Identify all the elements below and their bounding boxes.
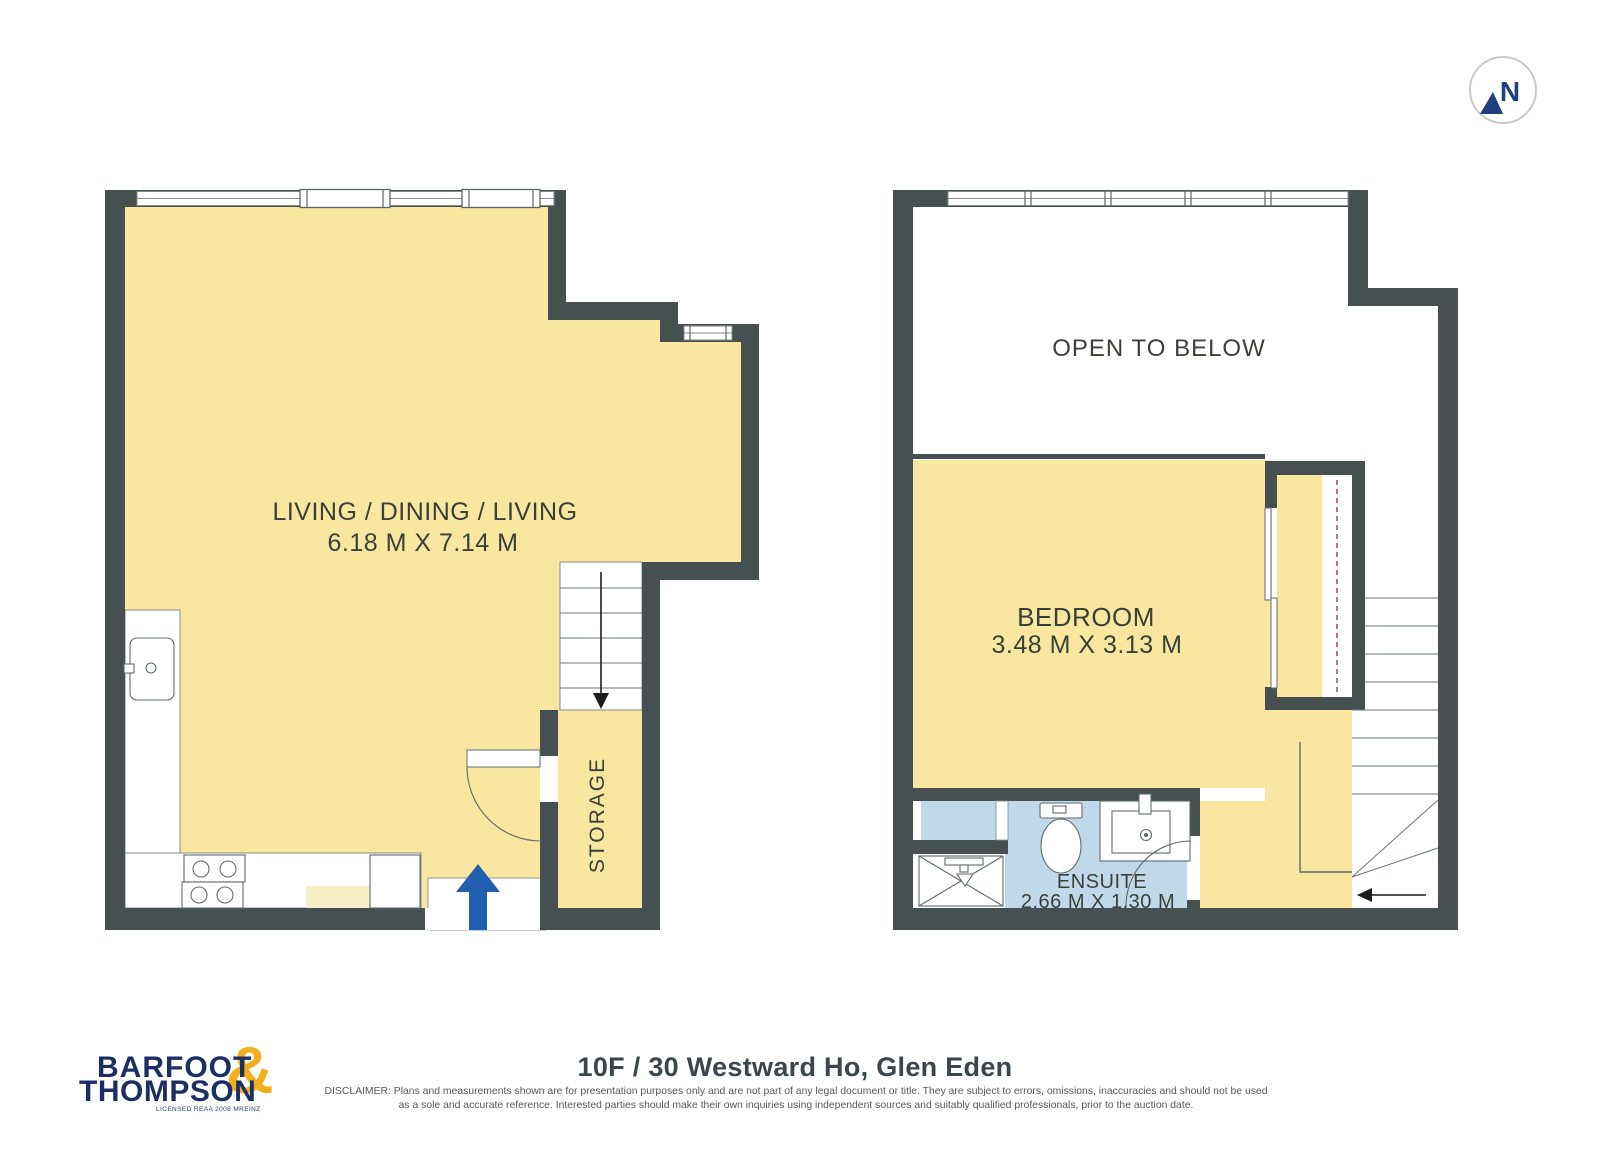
floor-plan-level-1: LIVING / DINING / LIVING 6.18 M X 7.14 M… (105, 190, 759, 931)
shower (919, 856, 1003, 906)
room-dims-ensuite: 2.66 M X 1.30 M (1021, 891, 1175, 913)
disclaimer-line1: DISCLAIMER: Plans and measurements shown… (0, 1085, 1592, 1099)
north-compass: N (1470, 57, 1536, 123)
disclaimer-line2: as a sole and accurate reference. Intere… (0, 1099, 1592, 1113)
page-title: 10F / 30 Westward Ho, Glen Eden (0, 1052, 1590, 1083)
window-band-level2 (948, 190, 1348, 207)
storage-door-opening (540, 756, 558, 802)
room-label-living: LIVING / DINING / LIVING (272, 498, 577, 526)
landing-floor-2 (1197, 801, 1352, 908)
room-label-bedroom: BEDROOM (1017, 602, 1155, 632)
stove-hob (182, 855, 245, 908)
ensuite-niche (921, 801, 996, 840)
north-label: N (1500, 76, 1520, 107)
notch-window (684, 326, 732, 340)
niche-opening (996, 801, 1008, 840)
room-dims-bedroom: 3.48 M X 3.13 M (992, 631, 1183, 659)
appliance (370, 855, 420, 908)
floor-plan-level-2: OPEN TO BELOW BEDROOM 3.48 M X 3.13 M EN… (893, 190, 1458, 930)
vanity (1100, 794, 1190, 861)
disclaimer: DISCLAIMER: Plans and measurements shown… (0, 1085, 1592, 1112)
wardrobe-floor (1277, 475, 1322, 697)
sink (124, 638, 174, 700)
window-band-level1 (137, 190, 554, 208)
toilet (1040, 803, 1082, 873)
room-label-ensuite: ENSUITE (1057, 871, 1147, 893)
stairwell-floor (1352, 710, 1438, 908)
open-to-below-label: OPEN TO BELOW (1052, 335, 1266, 362)
room-label-storage: STORAGE (586, 757, 609, 873)
room-dims-living: 6.18 M X 7.14 M (328, 529, 519, 557)
floor-plan-canvas: LIVING / DINING / LIVING 6.18 M X 7.14 M… (0, 0, 1600, 1167)
bench-inset (306, 886, 376, 908)
